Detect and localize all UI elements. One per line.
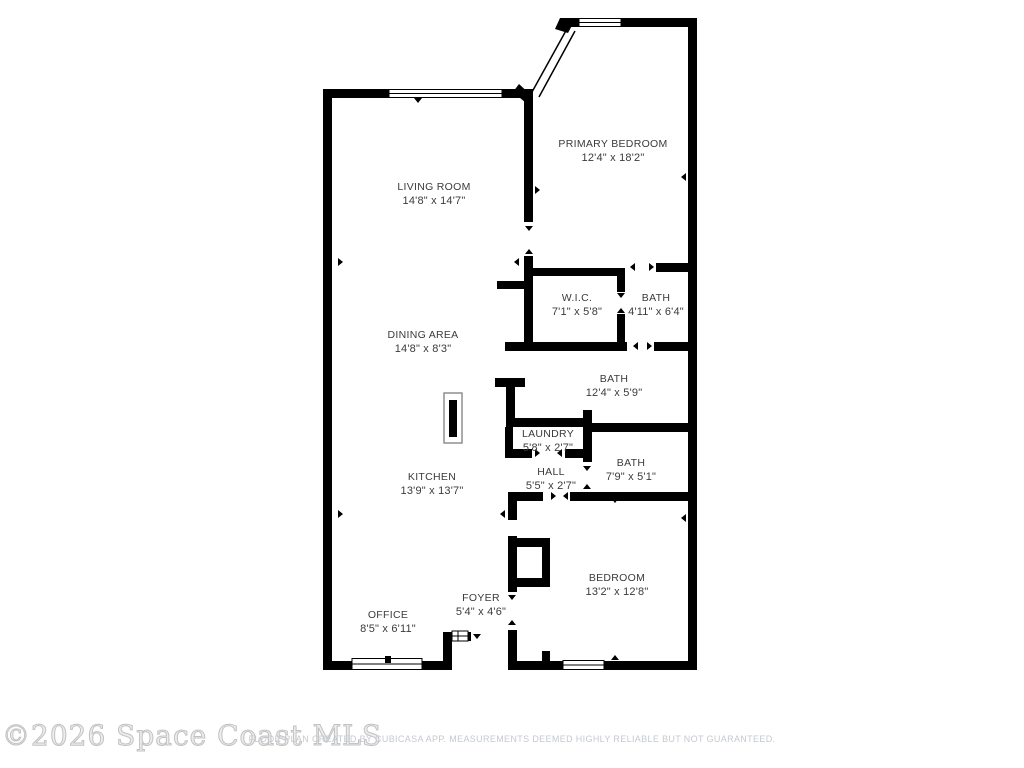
room-label-kitchen: KITCHEN bbox=[408, 471, 456, 483]
window-foyer-sidelite bbox=[452, 631, 468, 641]
room-label-foyer: FOYER bbox=[462, 592, 500, 604]
room-label-wic: W.I.C. bbox=[562, 292, 592, 304]
room-dims-primary-bedroom: 12'4" x 18'2" bbox=[582, 152, 645, 164]
room-label-hall: HALL bbox=[537, 466, 564, 478]
room-dims-office: 8'5" x 6'11" bbox=[360, 623, 416, 635]
window-primary-bedroom bbox=[579, 19, 621, 27]
room-label-primary-bedroom: PRIMARY BEDROOM bbox=[558, 138, 667, 150]
room-dims-bath-lower: 7'9" x 5'1" bbox=[606, 471, 656, 483]
room-dims-laundry: 5'8" x 2'7" bbox=[523, 442, 573, 454]
room-label-bath-middle: BATH bbox=[600, 373, 628, 385]
room-dims-wic: 7'1" x 5'8" bbox=[552, 306, 602, 318]
room-dims-bedroom: 13'2" x 12'8" bbox=[586, 586, 649, 598]
room-label-laundry: LAUNDRY bbox=[522, 428, 574, 440]
room-label-bath-lower: BATH bbox=[617, 457, 645, 469]
cubicasa-disclaimer: FLOOR PLAN CREATED BY CUBICASA APP. MEAS… bbox=[0, 734, 1024, 744]
window-living-room bbox=[389, 90, 502, 98]
window-office-double bbox=[352, 656, 422, 670]
room-dims-bath-middle: 12'4" x 5'9" bbox=[586, 387, 643, 399]
floorplan-drawing: PRIMARY BEDROOM 12'4" x 18'2" LIVING ROO… bbox=[0, 0, 1024, 768]
angled-bay-wall bbox=[513, 18, 576, 103]
room-dims-foyer: 5'4" x 4'6" bbox=[456, 606, 506, 618]
room-dims-hall: 5'5" x 2'7" bbox=[526, 480, 576, 492]
room-dims-living-room: 14'8" x 14'7" bbox=[403, 195, 466, 207]
kitchen-island bbox=[444, 393, 462, 443]
window-bedroom bbox=[563, 661, 604, 670]
room-label-living-room: LIVING ROOM bbox=[397, 181, 470, 193]
room-dims-dining-area: 14'8" x 8'3" bbox=[395, 343, 452, 355]
room-label-office: OFFICE bbox=[368, 609, 408, 621]
floorplan-page: PRIMARY BEDROOM 12'4" x 18'2" LIVING ROO… bbox=[0, 0, 1024, 768]
room-dims-kitchen: 13'9" x 13'7" bbox=[401, 485, 464, 497]
room-label-bath-upper: BATH bbox=[642, 292, 670, 304]
room-label-bedroom: BEDROOM bbox=[589, 572, 645, 584]
room-dims-bath-upper: 4'11" x 6'4" bbox=[628, 306, 684, 318]
room-label-dining-area: DINING AREA bbox=[388, 329, 459, 341]
